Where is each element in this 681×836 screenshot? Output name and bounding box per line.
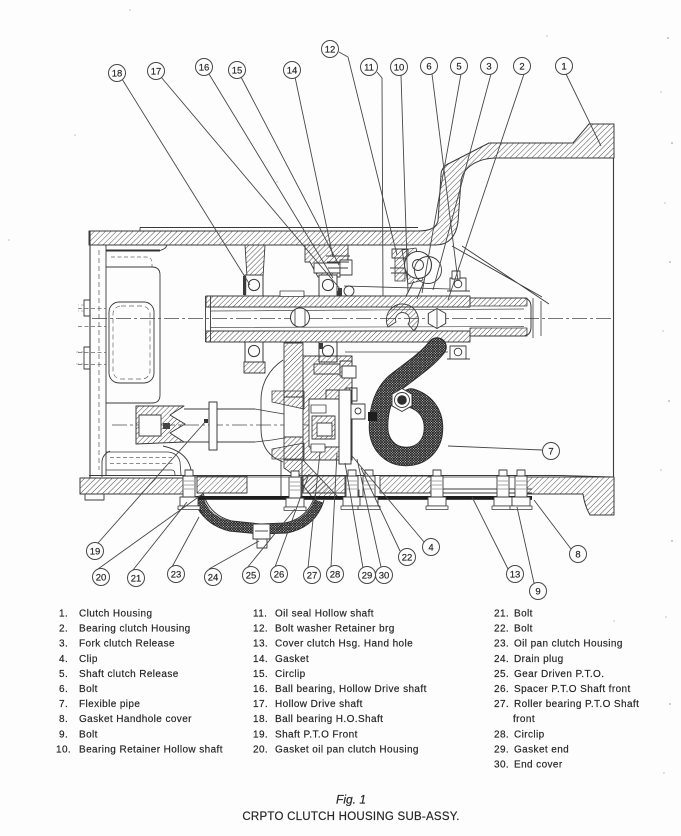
svg-text:4: 4: [428, 542, 433, 553]
svg-text:2.: 2.: [59, 624, 68, 635]
svg-text:24: 24: [208, 572, 219, 583]
svg-text:21.: 21.: [494, 609, 509, 620]
svg-text:10: 10: [394, 62, 405, 73]
svg-text:Gasket: Gasket: [275, 654, 309, 665]
svg-text:Drain plug: Drain plug: [514, 654, 564, 665]
svg-text:21: 21: [131, 573, 142, 584]
svg-text:Circlip: Circlip: [514, 729, 545, 740]
svg-text:19.: 19.: [253, 729, 268, 740]
svg-text:28: 28: [330, 569, 341, 580]
svg-text:28.: 28.: [494, 729, 509, 740]
svg-text:Bolt: Bolt: [514, 609, 533, 620]
svg-text:8.: 8.: [59, 714, 68, 725]
svg-text:Fork clutch Release: Fork clutch Release: [79, 639, 175, 650]
svg-text:30.: 30.: [494, 760, 509, 771]
svg-text:Ball bearing, Hollow Drive sha: Ball bearing, Hollow Drive shaft: [275, 684, 427, 695]
svg-text:15: 15: [232, 65, 243, 76]
svg-text:9.: 9.: [59, 729, 68, 740]
svg-text:Bolt: Bolt: [79, 684, 98, 695]
svg-text:14.: 14.: [253, 654, 268, 665]
svg-text:Gasket end: Gasket end: [514, 744, 569, 755]
svg-text:front: front: [513, 714, 535, 725]
svg-text:25: 25: [246, 570, 257, 581]
svg-text:6: 6: [426, 61, 431, 72]
svg-text:2: 2: [519, 61, 524, 72]
svg-text:11.: 11.: [253, 609, 267, 620]
svg-text:13: 13: [510, 569, 521, 580]
svg-text:10.: 10.: [56, 744, 71, 755]
svg-text:Bearing clutch Housing: Bearing clutch Housing: [79, 624, 191, 635]
svg-text:Circlip: Circlip: [275, 669, 306, 680]
svg-text:Gasket oil pan clutch Housing: Gasket oil pan clutch Housing: [275, 744, 419, 755]
svg-text:13.: 13.: [253, 639, 268, 650]
svg-text:CRPTO CLUTCH HOUSING SUB-ASSY.: CRPTO CLUTCH HOUSING SUB-ASSY.: [242, 811, 459, 823]
svg-text:18.: 18.: [253, 714, 268, 725]
svg-text:8: 8: [575, 549, 580, 560]
svg-text:12: 12: [325, 44, 336, 55]
svg-text:19: 19: [90, 546, 101, 557]
svg-text:22: 22: [402, 552, 413, 563]
svg-text:23: 23: [171, 569, 182, 580]
svg-text:24.: 24.: [494, 654, 509, 665]
svg-text:20.: 20.: [253, 744, 268, 755]
svg-text:Bearing Retainer Hollow shaft: Bearing Retainer Hollow shaft: [79, 744, 223, 755]
svg-text:6.: 6.: [59, 684, 68, 695]
svg-text:11: 11: [364, 62, 374, 73]
svg-text:Spacer P.T.O Shaft front: Spacer P.T.O Shaft front: [514, 684, 631, 695]
svg-text:15.: 15.: [253, 669, 268, 680]
svg-text:27: 27: [307, 570, 318, 581]
svg-text:29.: 29.: [494, 744, 509, 755]
svg-text:Cover clutch Hsg. Hand hole: Cover clutch Hsg. Hand hole: [275, 639, 413, 650]
svg-text:Roller bearing P.T.O Shaft: Roller bearing P.T.O Shaft: [514, 699, 639, 710]
svg-text:23.: 23.: [494, 639, 509, 650]
svg-text:1.: 1.: [59, 609, 68, 620]
svg-text:Ball bearing H.O.Shaft: Ball bearing H.O.Shaft: [275, 714, 383, 725]
svg-text:18: 18: [112, 68, 123, 79]
svg-text:30: 30: [379, 570, 390, 581]
svg-text:14: 14: [287, 65, 298, 76]
svg-text:26.: 26.: [494, 684, 509, 695]
svg-text:27.: 27.: [494, 699, 509, 710]
svg-text:17.: 17.: [253, 699, 268, 710]
svg-text:Bolt washer Retainer brg: Bolt washer Retainer brg: [275, 624, 395, 635]
svg-text:12.: 12.: [253, 624, 268, 635]
svg-text:Oil seal Hollow shaft: Oil seal Hollow shaft: [275, 609, 374, 620]
svg-text:25.: 25.: [494, 669, 509, 680]
svg-text:Bolt: Bolt: [514, 624, 533, 635]
svg-text:Hollow Drive shaft: Hollow Drive shaft: [275, 699, 363, 710]
svg-text:Gasket Handhole cover: Gasket Handhole cover: [79, 714, 192, 725]
svg-text:7: 7: [548, 446, 553, 457]
svg-text:5: 5: [456, 61, 461, 72]
svg-text:Shaft P.T.O Front: Shaft P.T.O Front: [275, 729, 358, 740]
svg-text:26: 26: [274, 569, 285, 580]
svg-text:Bolt: Bolt: [79, 729, 98, 740]
svg-text:Gear Driven P.T.O.: Gear Driven P.T.O.: [514, 669, 604, 680]
svg-text:Fig. 1: Fig. 1: [336, 793, 366, 807]
svg-text:4.: 4.: [59, 654, 68, 665]
svg-text:Oil pan clutch Housing: Oil pan clutch Housing: [514, 639, 623, 650]
svg-text:End cover: End cover: [514, 760, 563, 771]
svg-text:16.: 16.: [253, 684, 268, 695]
svg-text:1: 1: [561, 61, 566, 72]
svg-text:20: 20: [96, 572, 107, 583]
svg-text:Clutch Housing: Clutch Housing: [79, 609, 152, 620]
svg-text:Shaft clutch Release: Shaft clutch Release: [79, 669, 179, 680]
svg-text:5.: 5.: [59, 669, 68, 680]
svg-text:3: 3: [486, 61, 491, 72]
svg-text:Clip: Clip: [79, 654, 98, 665]
svg-text:29: 29: [362, 570, 373, 581]
svg-text:16: 16: [199, 62, 210, 73]
svg-text:Flexible pipe: Flexible pipe: [79, 699, 140, 710]
svg-text:22.: 22.: [494, 624, 509, 635]
svg-text:9: 9: [535, 586, 540, 597]
svg-text:17: 17: [151, 66, 162, 77]
svg-text:7.: 7.: [59, 699, 68, 710]
svg-text:3.: 3.: [59, 639, 68, 650]
